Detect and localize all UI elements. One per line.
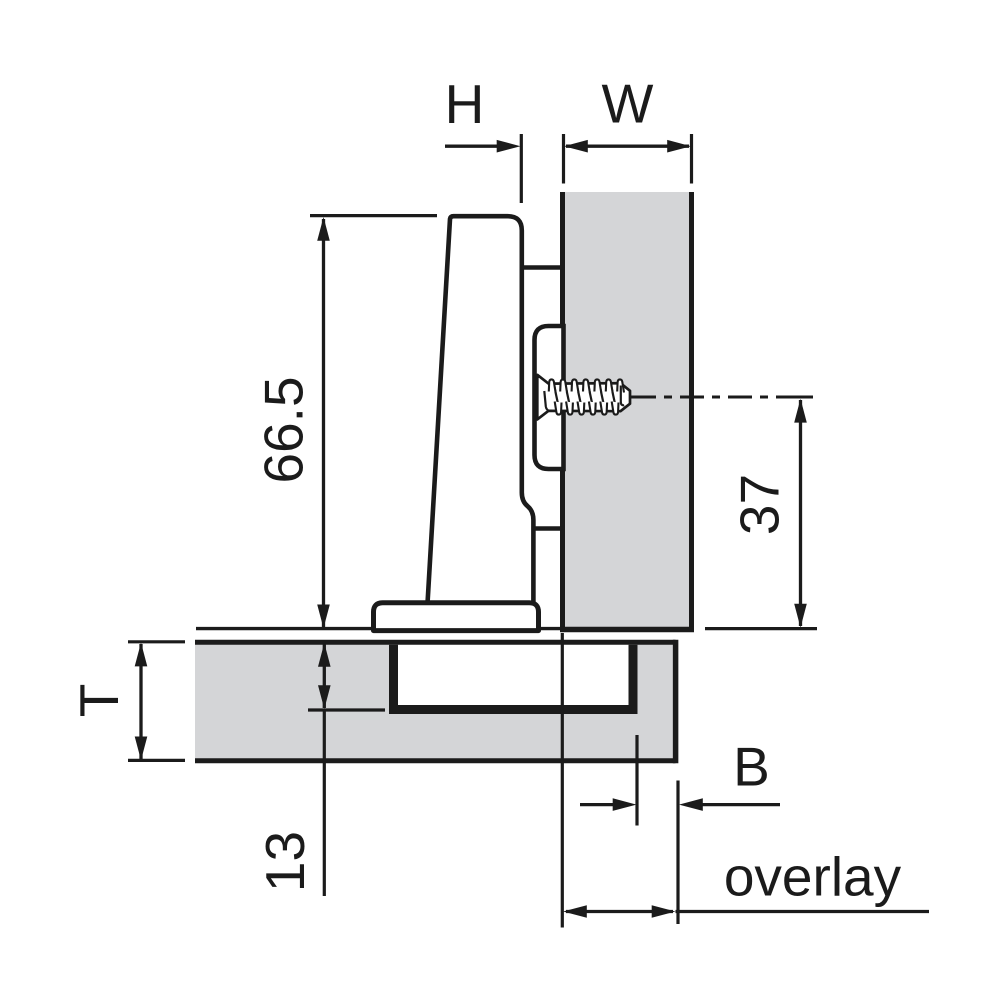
svg-text:B: B	[733, 736, 770, 798]
svg-text:T: T	[68, 684, 130, 718]
svg-text:overlay: overlay	[724, 846, 902, 908]
svg-text:66.5: 66.5	[253, 376, 315, 483]
svg-text:13: 13	[254, 831, 316, 892]
svg-text:H: H	[445, 73, 485, 135]
svg-text:W: W	[602, 73, 654, 135]
svg-text:37: 37	[729, 474, 791, 535]
